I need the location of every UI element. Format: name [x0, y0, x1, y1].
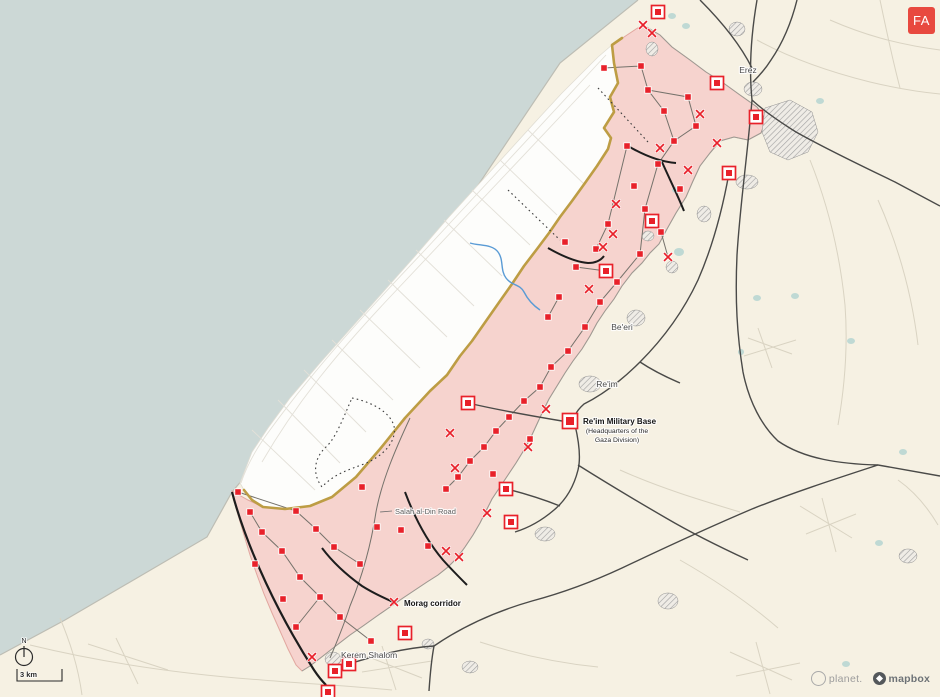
military-post-marker: [565, 348, 571, 354]
military-post-marker: [693, 123, 699, 129]
military-post-marker: [556, 294, 562, 300]
military-post-marker: [614, 279, 620, 285]
military-post-marker: [481, 444, 487, 450]
military-post-marker: [398, 527, 404, 533]
planet-attribution-link[interactable]: planet.: [811, 671, 863, 686]
military-post-marker: [645, 87, 651, 93]
scale-bar-label: 3 km: [20, 670, 37, 679]
military-post-marker: [331, 544, 337, 550]
military-hq-marker: [563, 414, 578, 429]
military-post-marker: [337, 614, 343, 620]
military-hq-marker: [723, 167, 736, 180]
military-hq-marker: [329, 665, 342, 678]
military-post-marker: [259, 529, 265, 535]
military-post-marker: [297, 574, 303, 580]
mapbox-logo-icon: [873, 672, 886, 685]
planet-label: planet.: [829, 673, 863, 685]
military-post-marker: [280, 596, 286, 602]
military-post-marker: [658, 229, 664, 235]
military-post-marker: [455, 474, 461, 480]
military-hq-marker: [750, 111, 763, 124]
military-post-marker: [359, 484, 365, 490]
compass-n-label: N: [21, 638, 26, 645]
military-hq-marker: [646, 215, 659, 228]
military-post-marker: [374, 524, 380, 530]
military-post-marker: [493, 428, 499, 434]
map-container: ErezBe'eriRe'imRe'im Military Base(Headq…: [0, 0, 940, 697]
military-post-marker: [467, 458, 473, 464]
map-label-kerem-shalom: Kerem Shalom: [341, 650, 397, 660]
mapbox-attribution-link[interactable]: mapbox: [873, 672, 930, 685]
military-post-marker: [642, 206, 648, 212]
military-post-marker: [247, 509, 253, 515]
military-hq-marker: [500, 483, 513, 496]
military-post-marker: [425, 543, 431, 549]
map-label-reim-base-sub1: (Headquarters of the: [586, 428, 649, 435]
military-post-marker: [677, 186, 683, 192]
map-label-morag-corridor: Morag corridor: [404, 599, 461, 608]
military-post-marker: [661, 108, 667, 114]
military-hq-marker: [505, 516, 518, 529]
map-label-beeri: Be'eri: [611, 322, 633, 332]
military-post-marker: [637, 251, 643, 257]
military-hq-marker: [399, 627, 412, 640]
military-post-marker: [521, 398, 527, 404]
military-hq-marker: [652, 6, 665, 19]
map-attribution: planet. mapbox: [811, 671, 930, 686]
military-post-marker: [357, 561, 363, 567]
military-post-marker: [631, 183, 637, 189]
military-hq-marker: [600, 265, 613, 278]
military-post-marker: [506, 414, 512, 420]
map-label-erez: Erez: [739, 65, 756, 75]
military-post-marker: [368, 638, 374, 644]
military-post-marker: [624, 143, 630, 149]
military-hq-marker: [322, 686, 335, 697]
map-label-salah-al-din-road: Salah al-Din Road: [395, 507, 456, 516]
military-post-marker: [313, 526, 319, 532]
map-canvas[interactable]: ErezBe'eriRe'imRe'im Military Base(Headq…: [0, 0, 940, 697]
military-post-marker: [235, 489, 241, 495]
military-post-marker: [582, 324, 588, 330]
mapbox-label: mapbox: [889, 673, 930, 685]
military-post-marker: [605, 221, 611, 227]
military-post-marker: [601, 65, 607, 71]
fa-logo-badge: FA: [908, 7, 935, 34]
military-post-marker: [545, 314, 551, 320]
military-post-marker: [573, 264, 579, 270]
military-post-marker: [548, 364, 554, 370]
military-post-marker: [252, 561, 258, 567]
military-post-marker: [490, 471, 496, 477]
military-post-marker: [597, 299, 603, 305]
military-post-marker: [279, 548, 285, 554]
military-hq-marker: [462, 397, 475, 410]
military-post-marker: [293, 508, 299, 514]
map-label-reim: Re'im: [596, 379, 617, 389]
military-post-marker: [443, 486, 449, 492]
military-post-marker: [562, 239, 568, 245]
military-post-marker: [685, 94, 691, 100]
planet-logo-icon: [811, 671, 826, 686]
military-post-marker: [638, 63, 644, 69]
military-post-marker: [671, 138, 677, 144]
map-label-reim-base-sub2: Gaza Division): [595, 437, 639, 444]
military-hq-marker: [711, 77, 724, 90]
military-post-marker: [655, 161, 661, 167]
military-post-marker: [537, 384, 543, 390]
military-post-marker: [317, 594, 323, 600]
military-post-marker: [527, 436, 533, 442]
map-label-reim-base-title: Re'im Military Base: [583, 417, 657, 426]
military-post-marker: [293, 624, 299, 630]
